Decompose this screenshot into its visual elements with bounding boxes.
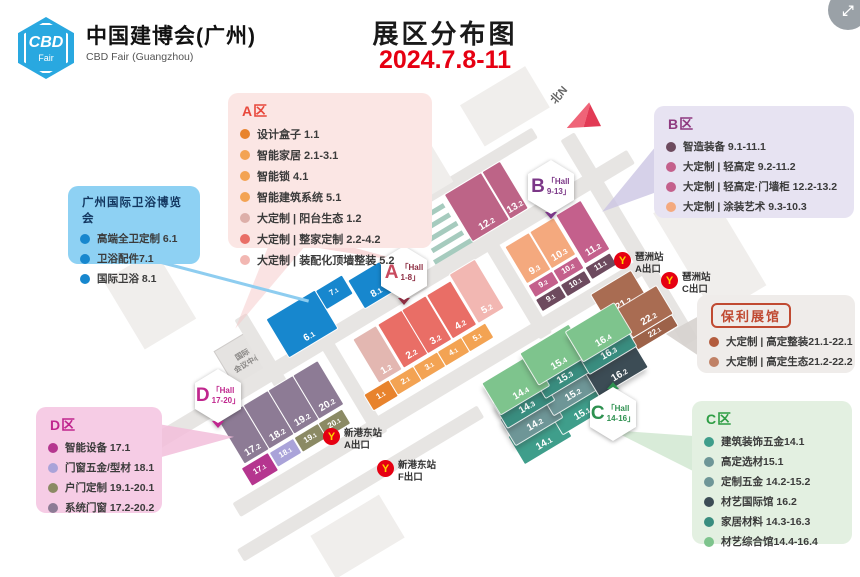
legend-dot-icon <box>704 437 714 447</box>
legend-dot-icon <box>240 129 250 139</box>
legend-item: 智能建筑系统 5.1 <box>240 189 422 205</box>
legend-item: 户门定制 19.1-20.1 <box>48 480 152 495</box>
legend-item-label: 建筑装饰五金14.1 <box>721 434 804 449</box>
legend-item: 卫浴配件7.1 <box>80 251 190 266</box>
hall-block-label: 5.2 <box>479 301 496 318</box>
hall-badge-b: B「Hall9-13」 <box>528 160 574 219</box>
hall-block-label: 18.1 <box>277 445 294 461</box>
legend-item-label: 门窗五金/型材 18.1 <box>65 460 154 475</box>
legend-b: B区智造装备 9.1-11.1大定制 | 轻高定 9.2-11.2大定制 | 轻… <box>654 106 854 218</box>
legend-dot-icon <box>709 337 719 347</box>
legend-item-label: 材艺国际馆 16.2 <box>721 494 797 509</box>
legend-item-label: 大定制 | 整家定制 2.2-4.2 <box>257 231 381 247</box>
legend-dot-icon <box>48 443 58 453</box>
legend-item: 材艺综合馆14.4-16.4 <box>704 534 842 549</box>
legend-poly: 保利展馆大定制 | 高定整装21.1-22.1大定制 | 高定生态21.2-22… <box>697 295 855 373</box>
legend-item-label: 设计盒子 1.1 <box>257 126 319 142</box>
legend-item: 大定制 | 轻高定 9.2-11.2 <box>666 159 844 174</box>
hall-block-label: 9.1 <box>544 291 558 305</box>
legend-item-label: 智能家居 2.1-3.1 <box>257 147 338 163</box>
metro-station-label: 琶洲站C出口 <box>682 272 711 296</box>
legend-dot-icon <box>240 171 250 181</box>
legend-item-label: 家居材料 14.3-16.3 <box>721 514 810 529</box>
metro-logo-icon: Y <box>661 272 678 289</box>
legend-item-label: 智造装备 9.1-11.1 <box>683 139 766 154</box>
legend-item: 家居材料 14.3-16.3 <box>704 514 842 529</box>
legend-dot-icon <box>704 517 714 527</box>
hall-block-label: 17.1 <box>251 461 268 477</box>
legend-item: 国际卫浴 8.1 <box>80 271 190 286</box>
hall-letter: B <box>531 176 545 198</box>
legend-item: 设计盒子 1.1 <box>240 126 422 142</box>
legend-title: 广州国际卫浴博览会 <box>82 194 190 226</box>
hall-block-label: 1.1 <box>374 388 388 402</box>
legend-title: C区 <box>706 409 842 429</box>
legend-dot-icon <box>666 142 676 152</box>
hall-range: 「Hall17-20」 <box>212 386 240 406</box>
hall-letter: C <box>591 403 605 425</box>
hall-block-label: 14.1 <box>534 435 555 455</box>
legend-d: D区智能设备 17.1门窗五金/型材 18.1户门定制 19.1-20.1系统门… <box>36 407 162 513</box>
legend-title: 保利展馆 <box>711 303 791 328</box>
legend-dot-icon <box>80 254 90 264</box>
legend-item: 大定制 | 涂装艺术 9.3-10.3 <box>666 199 844 214</box>
hall-block-label: 9.3 <box>527 262 544 279</box>
legend-item: 大定制 | 轻高定·门墙柜 12.2-13.2 <box>666 179 844 194</box>
hall-block-label: 2.2 <box>404 346 421 363</box>
legend-item-label: 大定制 | 高定生态21.2-22.2 <box>726 354 853 369</box>
north-compass: 北N <box>548 84 602 130</box>
legend-item: 智能设备 17.1 <box>48 440 152 455</box>
legend-item: 高端全卫定制 6.1 <box>80 231 190 246</box>
metro-station-label: 新港东站F出口 <box>398 460 436 484</box>
legend-item: 智能锁 4.1 <box>240 168 422 184</box>
metro-logo-icon: Y <box>323 428 340 445</box>
metro-station: Y琶洲站C出口 <box>661 272 711 296</box>
legend-item: 建筑装饰五金14.1 <box>704 434 842 449</box>
legend-item-label: 定制五金 14.2-15.2 <box>721 474 810 489</box>
hall-block-label: 10.1 <box>567 275 584 291</box>
legend-item-label: 户门定制 19.1-20.1 <box>65 480 154 495</box>
hall-block-label: 19.1 <box>302 430 319 446</box>
north-arrow-icon <box>567 100 604 131</box>
legend-a: A区设计盒子 1.1智能家居 2.1-3.1智能锁 4.1智能建筑系统 5.1大… <box>228 93 432 248</box>
legend-item: 高定选材15.1 <box>704 454 842 469</box>
legend-item: 系统门窗 17.2-20.2 <box>48 500 152 515</box>
legend-item: 大定制 | 阳台生态 1.2 <box>240 210 422 226</box>
legend-dot-icon <box>48 463 58 473</box>
hall-range: 「Hall9-13」 <box>547 177 571 197</box>
legend-dot-icon <box>709 357 719 367</box>
legend-dot-icon <box>48 483 58 493</box>
legend-title: D区 <box>50 415 152 435</box>
hall-block-label: 9.2 <box>537 277 551 291</box>
legend-item: 定制五金 14.2-15.2 <box>704 474 842 489</box>
hall-block-label: 11.1 <box>592 258 609 274</box>
legend-item-label: 高定选材15.1 <box>721 454 783 469</box>
legend-item-label: 大定制 | 装配化顶墙整装 5.2 <box>257 252 395 268</box>
hall-block-label: 3.2 <box>428 332 445 349</box>
hall-block-label: 1.2 <box>379 362 396 379</box>
legend-title: A区 <box>242 101 422 121</box>
legend-dot-icon <box>240 213 250 223</box>
legend-item-label: 系统门窗 17.2-20.2 <box>65 500 154 515</box>
legend-dot-icon <box>704 497 714 507</box>
legend-dot-icon <box>704 537 714 547</box>
legend-item-label: 智能设备 17.1 <box>65 440 130 455</box>
hall-block-label: 3.1 <box>423 359 437 373</box>
legend-dot-icon <box>240 255 250 265</box>
legend-item: 大定制 | 整家定制 2.2-4.2 <box>240 231 422 247</box>
legend-item: 门窗五金/型材 18.1 <box>48 460 152 475</box>
legend-item-label: 材艺综合馆14.4-16.4 <box>721 534 818 549</box>
legend-dot-icon <box>704 477 714 487</box>
metro-station: Y新港东站A出口 <box>323 428 382 452</box>
hall-block-label: 10.2 <box>560 261 577 277</box>
legend-item-label: 大定制 | 涂装艺术 9.3-10.3 <box>683 199 807 214</box>
legend-item: 大定制 | 装配化顶墙整装 5.2 <box>240 252 422 268</box>
exhibition-map-page: 国际 会议中心 6.17.18.11.22.23.24.25.21.12.13.… <box>0 0 860 577</box>
metro-station: Y新港东站F出口 <box>377 460 436 484</box>
hall-block-label: 5.1 <box>471 330 485 344</box>
legend-item-label: 国际卫浴 8.1 <box>97 271 157 286</box>
legend-dot-icon <box>80 234 90 244</box>
hall-block-label: 7.1 <box>328 285 342 299</box>
legend-dot-icon <box>80 274 90 284</box>
legend-bath: 广州国际卫浴博览会高端全卫定制 6.1卫浴配件7.1国际卫浴 8.1 <box>68 186 200 264</box>
legend-item-label: 卫浴配件7.1 <box>97 251 154 266</box>
legend-item: 材艺国际馆 16.2 <box>704 494 842 509</box>
legend-item-label: 高端全卫定制 6.1 <box>97 231 178 246</box>
legend-item-label: 大定制 | 高定整装21.1-22.1 <box>726 334 853 349</box>
legend-title: B区 <box>668 114 844 134</box>
legend-item-label: 智能建筑系统 5.1 <box>257 189 341 205</box>
expand-widget[interactable]: ⤢ <box>828 0 860 30</box>
metro-station: Y琶洲站A出口 <box>614 252 664 276</box>
cbd-fair-logo-icon: CBD Fair <box>18 17 74 79</box>
metro-logo-icon: Y <box>614 252 631 269</box>
hall-range: 「Hall14-16」 <box>607 404 635 424</box>
hall-block-label: 4.1 <box>447 345 461 359</box>
metro-logo-icon: Y <box>377 460 394 477</box>
legend-item-label: 智能锁 4.1 <box>257 168 308 184</box>
legend-dot-icon <box>704 457 714 467</box>
hall-letter: D <box>196 385 210 407</box>
legend-dot-icon <box>240 150 250 160</box>
legend-dot-icon <box>666 182 676 192</box>
legend-item: 大定制 | 高定整装21.1-22.1 <box>709 334 845 349</box>
legend-dot-icon <box>666 202 676 212</box>
expand-icon: ⤢ <box>842 2 853 19</box>
hall-badge-c: C「Hall14-16」 <box>590 382 636 441</box>
legend-item: 大定制 | 高定生态21.2-22.2 <box>709 354 845 369</box>
legend-dot-icon <box>48 503 58 513</box>
legend-item-label: 大定制 | 轻高定 9.2-11.2 <box>683 159 796 174</box>
metro-station-label: 琶洲站A出口 <box>635 252 664 276</box>
legend-dot-icon <box>240 234 250 244</box>
hall-badge-d: D「Hall17-20」 <box>195 369 241 428</box>
hall-block-label: 2.1 <box>399 374 413 388</box>
legend-item: 智造装备 9.1-11.1 <box>666 139 844 154</box>
metro-station-label: 新港东站A出口 <box>344 428 382 452</box>
legend-item-label: 大定制 | 轻高定·门墙柜 12.2-13.2 <box>683 179 837 194</box>
legend-dot-icon <box>666 162 676 172</box>
legend-dot-icon <box>240 192 250 202</box>
legend-c: C区建筑装饰五金14.1高定选材15.1定制五金 14.2-15.2材艺国际馆 … <box>692 401 852 544</box>
hall-block-label: 4.2 <box>453 317 470 334</box>
legend-item-label: 大定制 | 阳台生态 1.2 <box>257 210 362 226</box>
legend-item: 智能家居 2.1-3.1 <box>240 147 422 163</box>
